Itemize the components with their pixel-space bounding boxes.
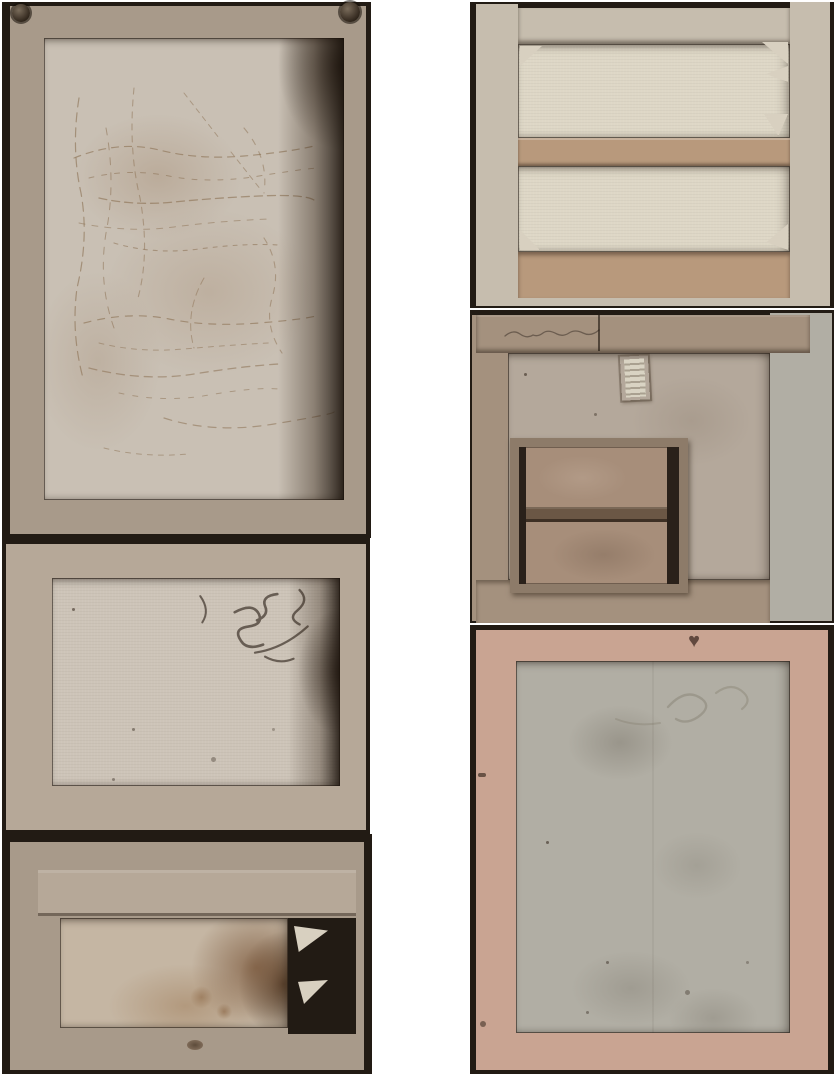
canvas-panel-upper [518,44,790,138]
canvas-panel-lower [518,166,790,252]
canvas-shadow [52,578,340,786]
inner-crossbar [526,507,667,522]
frame-edge-mark [478,773,486,777]
canvas-back [516,661,790,1033]
inner-frame-shadow-right [667,447,679,584]
nail-head [12,4,30,22]
stretcher-left-bar [476,4,518,306]
canvas-back [44,38,344,500]
nail-head [340,2,360,22]
paper-label [619,354,651,402]
wood-knot [187,1040,203,1050]
dirt-specks [524,373,527,376]
stretcher-crossbar [518,138,790,166]
canvas-shadow [44,38,344,500]
painting-verso-stained [2,834,372,1074]
wood-crack [598,315,600,351]
heart-stamp-icon: ♥ [682,629,706,653]
inner-canvas-panel-lower [526,522,667,582]
stretcher-bottom-bar [518,252,790,298]
stretcher-top-bar [476,315,810,353]
canvas-back [52,578,340,786]
stretcher-right-bar [790,2,830,306]
stretcher-left-bar [472,315,508,621]
painting-verso-craquelure [2,2,371,538]
dirt-specks [546,841,549,844]
painting-verso-heart-stamp: ♥ [470,625,834,1074]
inner-frame-shadow-left [519,447,526,584]
handwriting-inscription [500,323,610,345]
inner-canvas-panel-upper [526,449,667,507]
painting-verso-crossbar-stretcher [470,2,834,308]
painting-verso-scribbled [2,538,370,834]
composite-photo: ♥ [0,0,838,1074]
stained-canvas-back [60,918,288,1028]
attached-inner-stretcher [510,438,688,593]
stretcher-top-bar [38,870,356,916]
dirt-specks [72,608,75,611]
frame-edge-mark [480,1021,486,1027]
stretcher-bottom-edge [518,298,790,306]
stretcher-top-bar [518,8,790,44]
painting-verso-with-label [470,310,834,623]
faint-ghost-marks [576,669,776,749]
stretcher-right-bar [770,313,832,621]
